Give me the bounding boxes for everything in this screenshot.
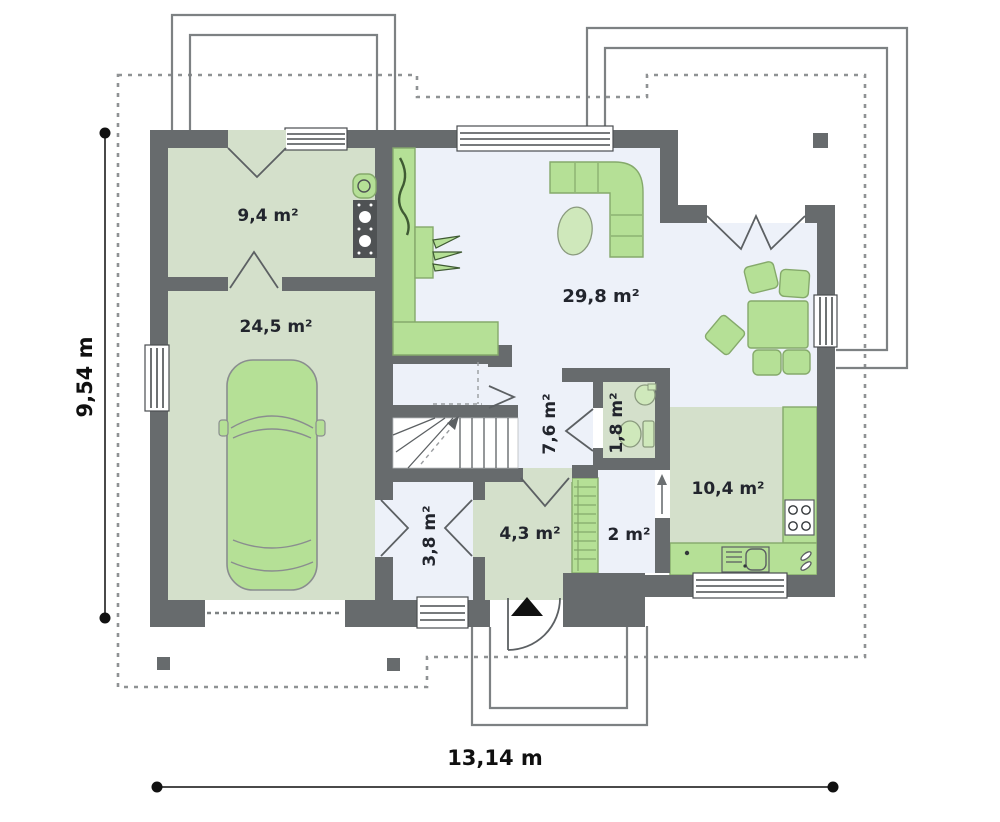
- porch-post-left: [157, 657, 170, 670]
- canopy-left-inner: [190, 35, 377, 130]
- height-dimension-label: 9,54 m: [73, 336, 97, 417]
- chimney: [813, 133, 828, 148]
- kitchen-window: [693, 573, 787, 598]
- storage-label: 3,8 m²: [420, 505, 440, 566]
- wc-label: 1,8 m²: [607, 392, 627, 453]
- wardrobe-unit: [572, 478, 598, 573]
- kitchen-drain-dot: [685, 551, 689, 555]
- garage-label: 24,5 m²: [239, 317, 312, 337]
- pantry-floor: [598, 470, 655, 573]
- boiler-room-window: [285, 128, 347, 150]
- dining-side-window: [814, 295, 837, 347]
- boiler-equipment: [353, 174, 377, 258]
- kitchen-label: 10,4 m²: [691, 479, 764, 499]
- living-room-window: [457, 126, 613, 151]
- dining-chair-3: [753, 350, 781, 375]
- living-room-label: 29,8 m²: [562, 286, 639, 307]
- furnace: [353, 200, 377, 258]
- floor-plan-page: 9,54 m 13,14 m 9,4 m² 24,5 m² 29,8 m² 7,…: [0, 0, 1000, 822]
- garage-side-window: [145, 345, 169, 411]
- dining-chair-4: [783, 350, 810, 374]
- cooktop: [785, 500, 814, 535]
- boiler-room-label: 9,4 m²: [237, 206, 298, 226]
- vestibule-label: 4,3 m²: [499, 524, 560, 544]
- water-heater: [353, 174, 376, 198]
- storage-window: [417, 597, 468, 628]
- pantry-label: 2 m²: [608, 525, 651, 545]
- porch-post-right: [387, 658, 400, 671]
- porch-outer: [472, 626, 647, 725]
- floor-plan-drawing: 9,54 m 13,14 m 9,4 m² 24,5 m² 29,8 m² 7,…: [0, 0, 1000, 822]
- hall-label: 7,6 m²: [540, 393, 560, 454]
- car: [219, 360, 325, 590]
- car-mirror-right: [316, 420, 325, 436]
- fireplace-bench: [393, 322, 498, 355]
- dining-chair-2: [779, 269, 810, 298]
- dining-table: [748, 301, 808, 348]
- kitchen-counter-bottom: [670, 543, 817, 575]
- width-dimension-label: 13,14 m: [447, 746, 543, 770]
- wc-toilet-tank: [643, 421, 654, 447]
- canopy-left-outer: [172, 15, 395, 130]
- car-mirror-left: [219, 420, 228, 436]
